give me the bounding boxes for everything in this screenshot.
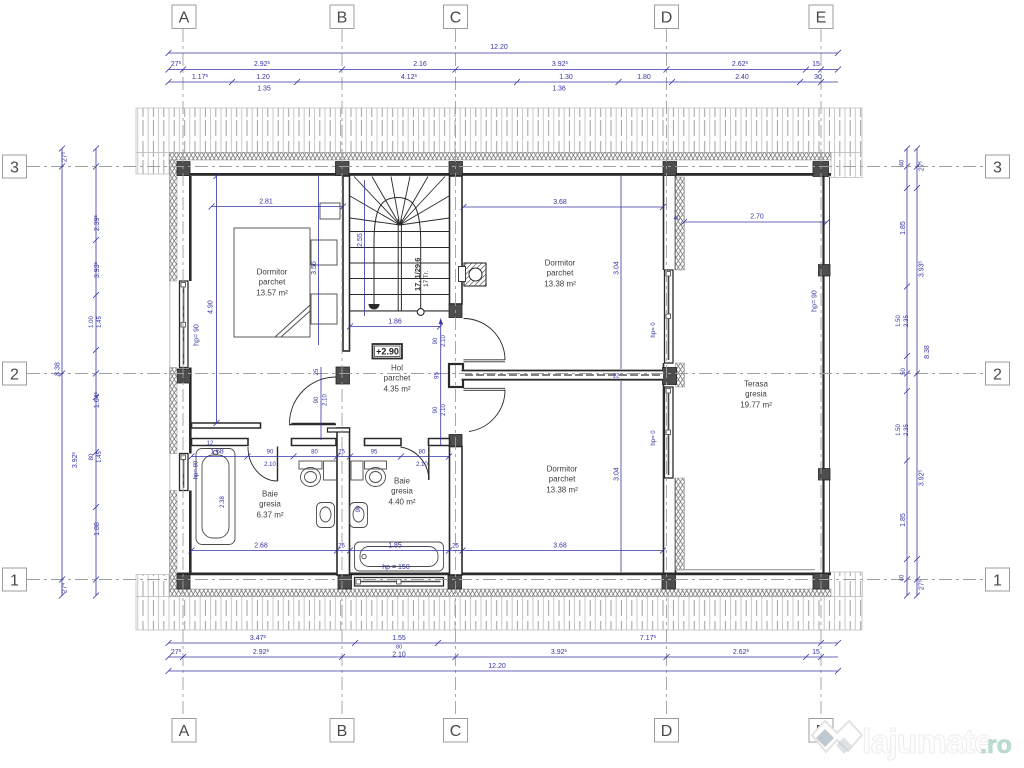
svg-text:.ro: .ro bbox=[980, 731, 1012, 759]
svg-text:25: 25 bbox=[314, 368, 320, 375]
svg-text:1.80: 1.80 bbox=[637, 74, 651, 81]
svg-text:90: 90 bbox=[356, 505, 362, 512]
svg-text:2.55: 2.55 bbox=[357, 233, 364, 247]
svg-text:90: 90 bbox=[433, 406, 439, 413]
svg-text:Dormitor: Dormitor bbox=[547, 465, 578, 474]
svg-text:40: 40 bbox=[900, 574, 906, 581]
svg-text:90: 90 bbox=[267, 450, 274, 456]
svg-text:Dormitor: Dormitor bbox=[545, 259, 576, 268]
svg-text:6.37 m²: 6.37 m² bbox=[256, 511, 283, 520]
svg-text:2.10: 2.10 bbox=[441, 335, 447, 347]
svg-text:1: 1 bbox=[10, 573, 19, 590]
svg-text:1.00: 1.00 bbox=[89, 316, 95, 328]
svg-text:Terasa: Terasa bbox=[744, 380, 769, 389]
svg-text:Dormitor: Dormitor bbox=[257, 268, 288, 277]
svg-text:4.35 m²: 4.35 m² bbox=[383, 385, 410, 394]
svg-text:hp= 90: hp= 90 bbox=[812, 290, 819, 312]
svg-text:90: 90 bbox=[314, 396, 320, 403]
svg-text:+2.90: +2.90 bbox=[376, 347, 399, 357]
svg-text:3.68: 3.68 bbox=[553, 199, 567, 206]
svg-text:1.85: 1.85 bbox=[388, 543, 402, 550]
svg-text:2.16: 2.16 bbox=[413, 61, 427, 68]
svg-text:B: B bbox=[337, 723, 348, 740]
svg-text:13.57 m²: 13.57 m² bbox=[256, 289, 288, 298]
svg-text:parchet: parchet bbox=[549, 475, 576, 484]
svg-text:parchet: parchet bbox=[547, 269, 574, 278]
svg-text:1.35: 1.35 bbox=[257, 86, 271, 93]
svg-text:80: 80 bbox=[89, 453, 95, 460]
svg-text:13.38 m²: 13.38 m² bbox=[544, 280, 576, 289]
svg-text:Baie: Baie bbox=[262, 490, 279, 499]
svg-text:17. 1/29.6: 17. 1/29.6 bbox=[413, 258, 422, 291]
svg-text:D: D bbox=[661, 723, 673, 740]
svg-text:1: 1 bbox=[993, 573, 1002, 590]
svg-text:8.38: 8.38 bbox=[924, 345, 931, 359]
svg-text:3.04: 3.04 bbox=[614, 467, 621, 481]
svg-text:25: 25 bbox=[338, 450, 345, 456]
svg-text:1.36: 1.36 bbox=[552, 86, 566, 93]
svg-text:parchet: parchet bbox=[259, 278, 286, 287]
svg-text:19.77 m²: 19.77 m² bbox=[740, 401, 772, 410]
svg-text:1.20: 1.20 bbox=[256, 74, 270, 81]
svg-text:1.86: 1.86 bbox=[388, 319, 402, 326]
svg-text:15: 15 bbox=[812, 61, 820, 68]
svg-text:95: 95 bbox=[371, 450, 378, 456]
svg-text:25: 25 bbox=[338, 544, 345, 550]
svg-text:3: 3 bbox=[10, 160, 19, 177]
svg-text:2.10: 2.10 bbox=[264, 462, 276, 468]
svg-text:hp= 90: hp= 90 bbox=[194, 460, 200, 479]
svg-text:13.38 m²: 13.38 m² bbox=[546, 486, 578, 495]
svg-text:17 Tr.: 17 Tr. bbox=[423, 271, 430, 287]
svg-text:C: C bbox=[450, 10, 462, 27]
svg-text:8.38: 8.38 bbox=[55, 362, 62, 376]
svg-text:80: 80 bbox=[396, 645, 402, 651]
svg-text:2.40: 2.40 bbox=[735, 74, 749, 81]
svg-text:2.70: 2.70 bbox=[750, 214, 764, 221]
svg-text:gresia: gresia bbox=[391, 487, 413, 496]
svg-text:Baie: Baie bbox=[394, 477, 411, 486]
svg-text:hp= 0: hp= 0 bbox=[651, 322, 657, 338]
svg-text:1.30: 1.30 bbox=[559, 74, 573, 81]
svg-text:B: B bbox=[337, 10, 348, 27]
svg-text:1.50: 1.50 bbox=[896, 424, 902, 436]
svg-text:hp= 90: hp= 90 bbox=[194, 324, 201, 346]
svg-text:hp = 150: hp = 150 bbox=[382, 564, 410, 571]
svg-text:1.85: 1.85 bbox=[900, 221, 907, 235]
svg-text:30: 30 bbox=[814, 74, 822, 81]
svg-text:E: E bbox=[816, 10, 827, 27]
svg-text:80: 80 bbox=[419, 450, 426, 456]
svg-text:2.35: 2.35 bbox=[904, 315, 910, 327]
svg-text:4.90: 4.90 bbox=[208, 300, 215, 314]
svg-text:25: 25 bbox=[452, 544, 459, 550]
svg-text:parchet: parchet bbox=[384, 374, 411, 383]
svg-text:gresia: gresia bbox=[745, 390, 767, 399]
svg-text:2.68: 2.68 bbox=[254, 543, 268, 550]
svg-text:12.20: 12.20 bbox=[488, 663, 506, 670]
svg-text:1.45: 1.45 bbox=[97, 451, 103, 463]
svg-text:4.40 m²: 4.40 m² bbox=[388, 498, 415, 507]
svg-text:2.10: 2.10 bbox=[392, 652, 406, 659]
svg-text:2.81: 2.81 bbox=[259, 199, 273, 206]
svg-text:15: 15 bbox=[812, 649, 820, 656]
svg-text:lajumate: lajumate bbox=[862, 723, 992, 761]
svg-text:50: 50 bbox=[901, 368, 907, 375]
svg-text:40: 40 bbox=[674, 216, 681, 222]
svg-text:1.88: 1.88 bbox=[94, 522, 101, 536]
svg-text:2.10: 2.10 bbox=[323, 394, 329, 406]
svg-text:D: D bbox=[661, 10, 673, 27]
svg-text:1.55: 1.55 bbox=[392, 635, 406, 642]
svg-text:gresia: gresia bbox=[259, 500, 281, 509]
svg-text:1.45: 1.45 bbox=[97, 316, 103, 328]
svg-text:1.85: 1.85 bbox=[900, 513, 907, 527]
svg-text:3.04: 3.04 bbox=[614, 261, 621, 275]
svg-text:3: 3 bbox=[993, 160, 1002, 177]
svg-text:2.10: 2.10 bbox=[441, 404, 447, 416]
svg-text:3.68: 3.68 bbox=[553, 543, 567, 550]
svg-text:1.50: 1.50 bbox=[896, 315, 902, 327]
svg-text:2.10: 2.10 bbox=[416, 462, 428, 468]
svg-text:2: 2 bbox=[993, 367, 1002, 384]
svg-text:80: 80 bbox=[311, 450, 318, 456]
svg-text:1.68: 1.68 bbox=[210, 449, 224, 456]
svg-text:2.38: 2.38 bbox=[220, 496, 226, 508]
svg-text:90: 90 bbox=[433, 337, 439, 344]
svg-text:12.20: 12.20 bbox=[490, 44, 508, 51]
svg-text:12: 12 bbox=[613, 374, 620, 380]
svg-text:2: 2 bbox=[10, 367, 19, 384]
svg-text:C: C bbox=[450, 723, 462, 740]
svg-text:hp= 0: hp= 0 bbox=[651, 430, 657, 446]
svg-text:Hol: Hol bbox=[391, 364, 403, 373]
svg-text:3.56: 3.56 bbox=[311, 261, 318, 275]
svg-text:A: A bbox=[179, 10, 190, 27]
svg-text:95: 95 bbox=[435, 372, 441, 379]
svg-text:12: 12 bbox=[207, 441, 214, 447]
svg-text:40: 40 bbox=[900, 159, 906, 166]
svg-text:2.35: 2.35 bbox=[904, 424, 910, 436]
svg-text:A: A bbox=[179, 723, 190, 740]
